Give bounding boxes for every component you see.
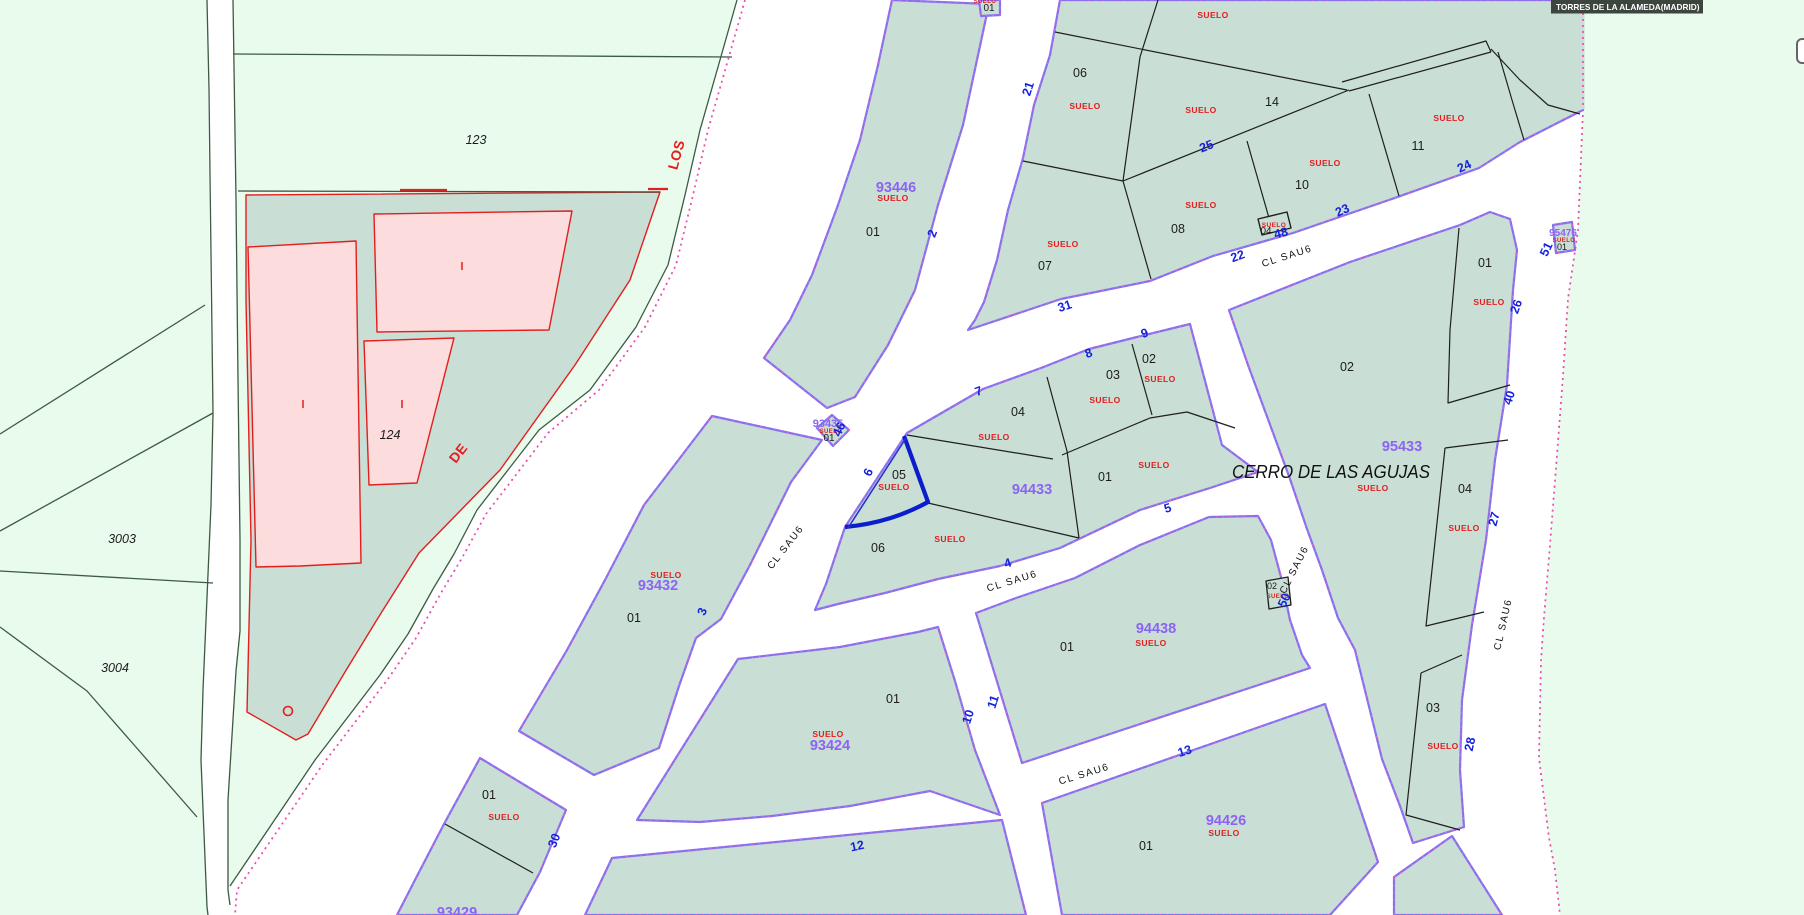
svg-text:SUELO: SUELO (974, 0, 997, 5)
svg-text:08: 08 (1171, 222, 1185, 236)
svg-text:SUELO: SUELO (978, 432, 1009, 442)
svg-text:SUELO: SUELO (1185, 105, 1216, 115)
svg-text:124: 124 (380, 428, 401, 442)
svg-text:03: 03 (1426, 701, 1440, 715)
svg-text:SUELO: SUELO (878, 482, 909, 492)
svg-text:02: 02 (1267, 581, 1277, 591)
svg-text:94426: 94426 (1206, 813, 1246, 829)
svg-text:01: 01 (1139, 839, 1153, 853)
svg-text:06: 06 (871, 541, 885, 555)
svg-text:SUELO: SUELO (1357, 483, 1388, 493)
svg-text:SUELO: SUELO (1069, 101, 1100, 111)
svg-text:SUELO: SUELO (1448, 523, 1479, 533)
svg-text:95433: 95433 (1382, 439, 1422, 455)
svg-text:01: 01 (1060, 640, 1074, 654)
svg-text:SUELO: SUELO (1197, 10, 1228, 20)
svg-text:01: 01 (886, 692, 900, 706)
svg-text:04: 04 (1458, 482, 1472, 496)
svg-text:SUELO: SUELO (1309, 158, 1340, 168)
svg-text:10: 10 (1295, 178, 1309, 192)
svg-text:01: 01 (482, 788, 496, 802)
svg-text:SUELO: SUELO (1185, 200, 1216, 210)
svg-text:SUELO: SUELO (1433, 113, 1464, 123)
svg-text:01: 01 (1557, 242, 1567, 252)
svg-text:3004: 3004 (101, 661, 129, 675)
svg-text:06: 06 (1073, 66, 1087, 80)
svg-text:07: 07 (1038, 259, 1052, 273)
svg-text:123: 123 (466, 133, 487, 147)
svg-text:SUELO: SUELO (488, 812, 519, 822)
svg-text:93446: 93446 (876, 180, 916, 196)
svg-text:11: 11 (1412, 139, 1425, 153)
svg-text:93432: 93432 (638, 578, 678, 594)
svg-text:02: 02 (1142, 352, 1156, 366)
svg-text:SUELO: SUELO (1144, 374, 1175, 384)
svg-text:3003: 3003 (108, 532, 136, 546)
svg-text:03: 03 (1106, 368, 1120, 382)
svg-text:05: 05 (892, 468, 906, 482)
svg-text:14: 14 (1265, 95, 1279, 109)
svg-text:28: 28 (1462, 736, 1479, 753)
svg-text:SUELO: SUELO (934, 534, 965, 544)
svg-text:SUELO: SUELO (1138, 460, 1169, 470)
svg-text:94438: 94438 (1136, 621, 1176, 637)
svg-text:SUELO: SUELO (1208, 828, 1239, 838)
svg-text:01: 01 (866, 225, 880, 239)
svg-text:SUELO: SUELO (1135, 638, 1166, 648)
svg-text:93429: 93429 (437, 905, 477, 915)
svg-text:01: 01 (1098, 470, 1112, 484)
svg-text:12: 12 (849, 838, 866, 855)
svg-text:SUELO: SUELO (1427, 741, 1458, 751)
svg-text:04: 04 (1011, 405, 1025, 419)
svg-text:SUELO: SUELO (1473, 297, 1504, 307)
svg-text:SUELO: SUELO (1047, 239, 1078, 249)
svg-text:SUELO: SUELO (1089, 395, 1120, 405)
svg-text:95476: 95476 (1549, 228, 1577, 239)
svg-text:CERRO DE LAS AGUJAS: CERRO DE LAS AGUJAS (1232, 462, 1430, 482)
svg-text:01: 01 (627, 611, 641, 625)
svg-text:01: 01 (1478, 256, 1492, 270)
svg-text:TORRES DE LA ALAMEDA(MADRID): TORRES DE LA ALAMEDA(MADRID) (1556, 2, 1700, 12)
svg-text:02: 02 (1340, 360, 1354, 374)
svg-text:94433: 94433 (1012, 482, 1052, 498)
svg-text:93424: 93424 (810, 738, 850, 754)
